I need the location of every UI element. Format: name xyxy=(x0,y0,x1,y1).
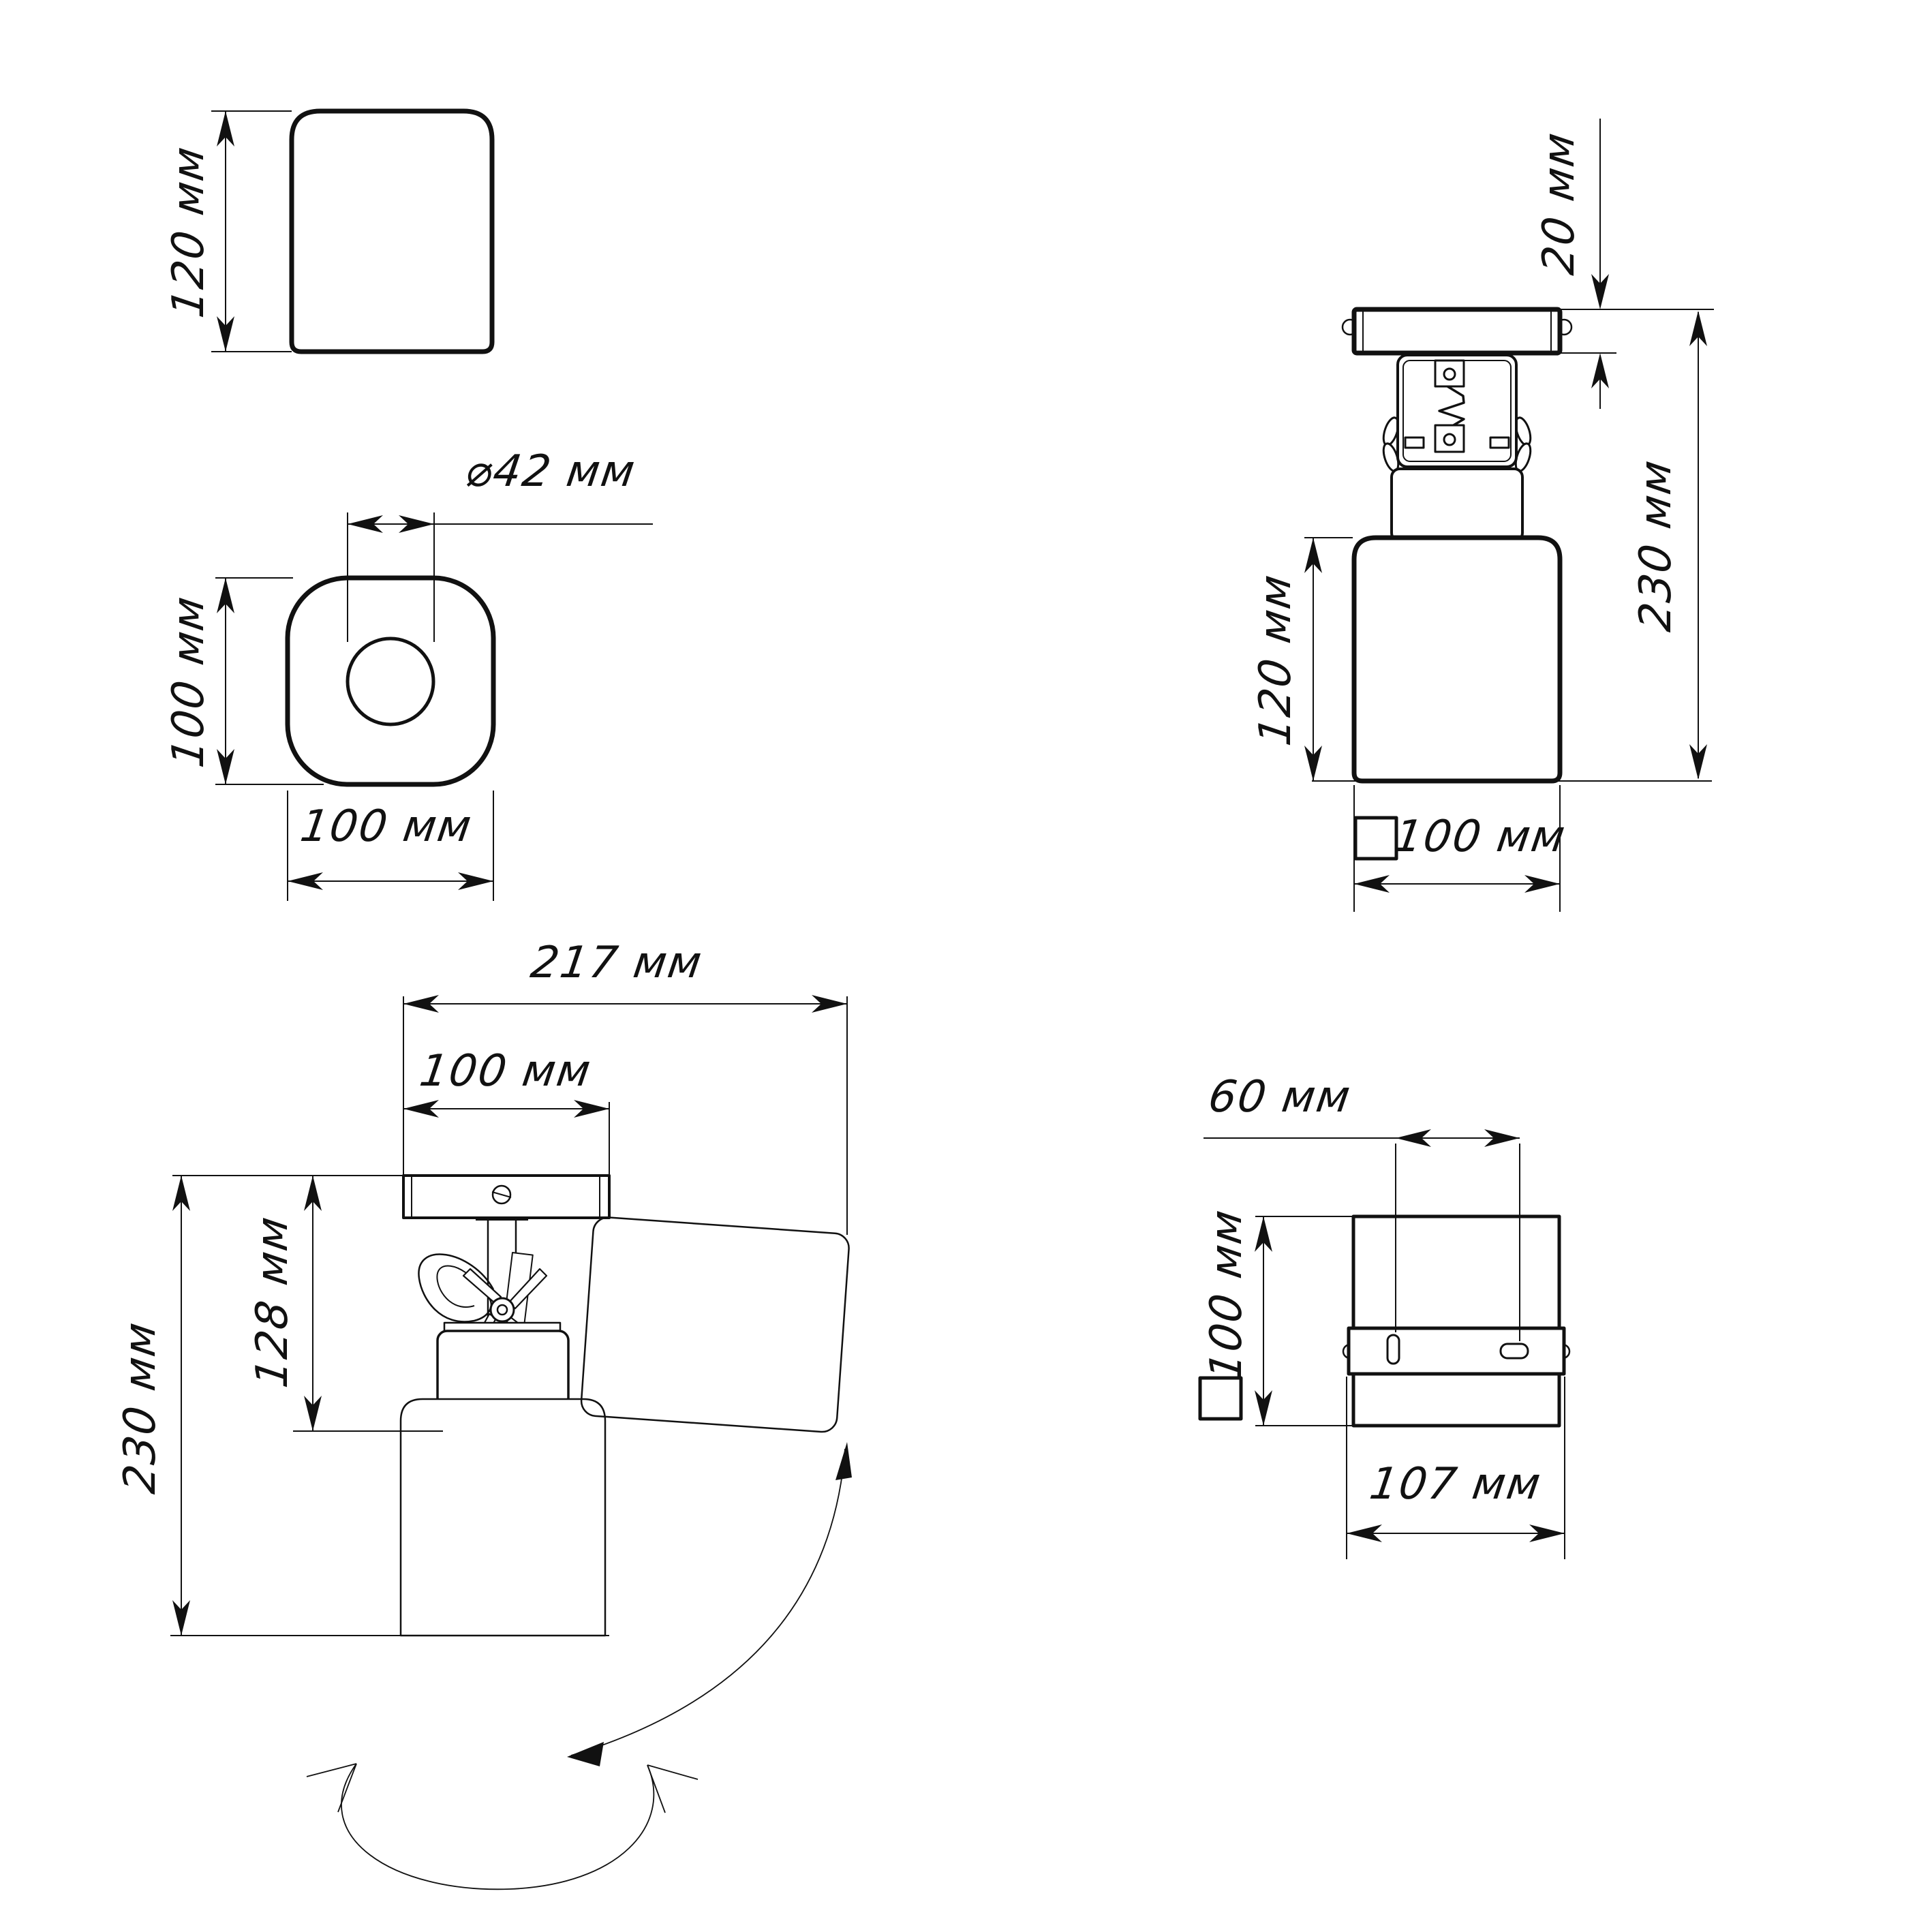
drawing-linework xyxy=(0,0,1932,1932)
mounting-slot-vertical xyxy=(1387,1335,1399,1364)
dim-label-front-shade-height: 120 мм xyxy=(1251,570,1301,748)
lamp-socket xyxy=(1392,469,1522,541)
dim-label-side-canopy-width: 100 мм xyxy=(416,1046,594,1097)
lamp-socket xyxy=(438,1331,568,1407)
dim-label-side-span: 217 мм xyxy=(527,938,705,988)
square-section-symbol xyxy=(1200,1378,1241,1419)
square-section-symbol xyxy=(1355,818,1396,859)
lamp-shade xyxy=(1354,538,1560,781)
tilt-rotation-arc xyxy=(571,1449,845,1755)
shade-side-view-drawing xyxy=(211,111,492,352)
lamp-body xyxy=(401,1399,605,1636)
dim-label-back-body-height: 100 мм xyxy=(1201,1206,1252,1383)
dim-label-shade-top-width: 100 мм xyxy=(297,801,475,852)
dim-label-front-shade-width: 100 мм xyxy=(1391,812,1569,862)
fixture-tilted-side-view-drawing xyxy=(170,995,852,1889)
fixture-body xyxy=(1353,1216,1559,1426)
dim-label-hole-diameter: ⌀42 мм xyxy=(462,446,639,497)
mounting-band xyxy=(1349,1328,1564,1374)
dim-label-canopy-height: 20 мм xyxy=(1534,129,1584,278)
lamp-hole-circle xyxy=(348,639,433,724)
dim-label-back-body-width: 107 мм xyxy=(1366,1459,1544,1509)
dim-label-hole-spacing: 60 мм xyxy=(1206,1072,1355,1122)
swivel-rotation-ellipse xyxy=(341,1764,654,1889)
dim-label-side-total-height: 230 мм xyxy=(115,1318,166,1496)
dim-label-front-total-height: 230 мм xyxy=(1631,456,1681,634)
dim-label-bracket-height: 128 мм xyxy=(247,1212,298,1390)
dim-label-shade-side-height: 120 мм xyxy=(164,142,214,320)
technical-drawing-canvas: 120 мм ⌀42 мм 100 мм 100 мм 20 мм 230 мм… xyxy=(0,0,1932,1932)
dim-label-shade-top-depth: 100 мм xyxy=(164,592,214,770)
mounting-slot-horizontal xyxy=(1501,1344,1528,1358)
ceiling-canopy-plate xyxy=(1354,309,1560,353)
lamp-shade-tilted xyxy=(581,1216,850,1433)
